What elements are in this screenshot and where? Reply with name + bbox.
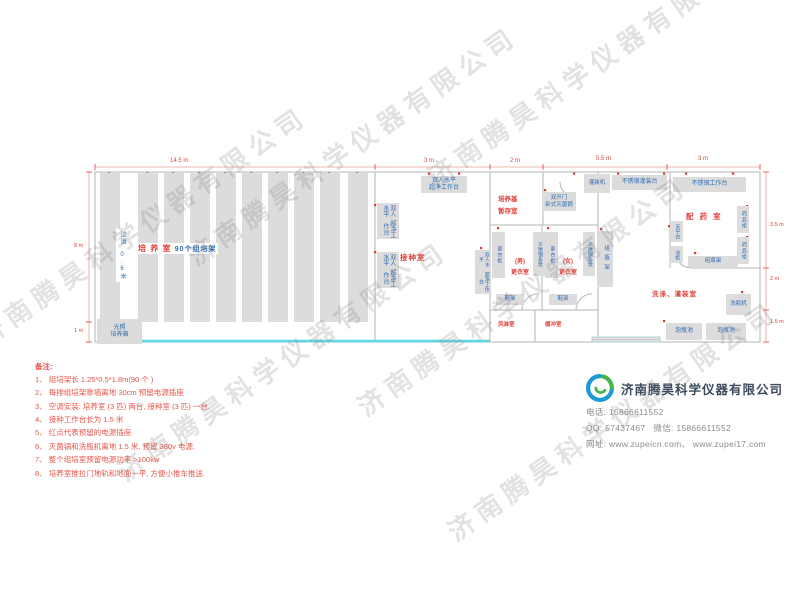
sterilizer: 双开门 卧式灭菌锅 xyxy=(542,192,576,211)
freezer: 冰柜 xyxy=(670,246,683,263)
clean-bench-top: 双人水平 超净工作台 xyxy=(421,176,467,193)
dispensing-room-label: 配 药 室 xyxy=(686,211,723,222)
culture-rack xyxy=(268,173,288,322)
dim-right-2: 2 m xyxy=(770,276,779,282)
male-changing-room-label: (男) 更衣室 xyxy=(506,257,534,279)
company-block: 济南腾昊科学仪器有限公司 电话: 15866611552 QQ: 5743746… xyxy=(586,374,783,450)
company-phone-line: 电话: 15866611552 xyxy=(586,406,783,418)
inoculation-room-label: 接种室 xyxy=(400,252,426,263)
culture-room-label: 培 养 室 90个组培架 xyxy=(136,243,218,254)
remark-item: 6、 灭菌锅和洗瓶机离地 1.5 米, 预留 380v 电源. xyxy=(35,442,210,453)
medicine-cabinet-1: 药品柜 xyxy=(737,206,749,233)
remark-item: 1、 组培架长 1.25*0.5*1.8m(90 个 ) xyxy=(35,375,210,386)
ss-worktable: 不锈钢工作台 xyxy=(673,177,746,192)
company-logo xyxy=(586,374,614,402)
dim-left-2: 1 m xyxy=(74,328,83,334)
ss-bench-female: 不锈钢条凳 xyxy=(583,232,595,276)
dim-top-1: 14.5 m xyxy=(170,158,188,164)
culture-rack xyxy=(294,173,314,322)
remarks-block: 备注: 1、 组培架长 1.25*0.5*1.8m(90 个 ) 2、 每排组培… xyxy=(35,362,210,482)
remark-item: 2、 每排组培架靠墙离地 30cm 预留电源插座 xyxy=(35,388,210,399)
company-web-line: 网址: www.zupeicn.com、 www.zupei17.com xyxy=(586,438,783,450)
culture-rack xyxy=(320,173,340,322)
bottle-rack-dispensing: 组瓶架 xyxy=(688,256,738,267)
floorplan-page: 培 养 室 90个组培架 过道 0.6米 光照 培养箱 接种室 双人水平 超净工… xyxy=(0,0,800,600)
ss-bench-male: 不锈钢条凳 xyxy=(533,232,545,276)
ss-filling-table: 不锈钢灌装台 xyxy=(612,175,667,190)
dim-top-4: 5.5 m xyxy=(596,156,611,162)
dim-top-3: 2 m xyxy=(510,158,520,164)
shoe-rack-female: 鞋架 xyxy=(549,294,577,305)
shoe-rack-male: 鞋架 xyxy=(496,294,524,305)
dim-right-3: 1.5 m xyxy=(770,319,784,325)
remark-item: 3、 空调安装: 培养室 (3 匹) 两台, 接种室 (3 匹) 一台. xyxy=(35,402,210,413)
plan-content: 培 养 室 90个组培架 过道 0.6米 光照 培养箱 接种室 双人水平 超净工… xyxy=(0,0,800,600)
clean-bench-left-2: 双人水平 超净工作台 xyxy=(377,252,399,288)
wechat-number: 15866611552 xyxy=(676,423,731,433)
bottle-washer: 洗瓶机 xyxy=(726,294,751,315)
air-shower-label: 风淋室 xyxy=(498,320,515,328)
dim-left-1: 8 m xyxy=(74,243,83,249)
clean-bench-right: 双人水平 超净工作台 xyxy=(475,250,491,294)
clean-bench-left-1: 双人水平 超净工作台 xyxy=(377,203,399,239)
dim-top-2: 3 m xyxy=(424,158,434,164)
company-name: 济南腾昊科学仪器有限公司 xyxy=(621,379,783,398)
bottle-rack-wall: 组瓶架 xyxy=(599,231,613,287)
dim-right-1: 3.5 m xyxy=(770,222,784,228)
company-qq-line: QQ: 57437467 微信: 15866611552 xyxy=(586,422,783,434)
remark-item: 7、 整个组培室预留电源功率 >100kw xyxy=(35,455,210,466)
remark-item: 5、 红点代表预留的电源插座 xyxy=(35,428,210,439)
culture-rack xyxy=(242,173,262,322)
remark-item: 4、 接种工作台长为 1.5 米 xyxy=(35,415,210,426)
wardrobe-male: 更衣柜 xyxy=(492,232,505,278)
light-incubator: 光照 培养箱 xyxy=(97,319,142,344)
culture-rack xyxy=(348,173,368,322)
female-changing-room-label: (女) 更衣室 xyxy=(554,257,582,279)
medicine-cabinet-2: 药品柜 xyxy=(737,237,749,264)
balance-table: 天平台 xyxy=(670,221,683,242)
culture-room-name: 培 养 室 xyxy=(138,244,171,253)
qq-number: 57437467 xyxy=(605,423,645,433)
phone-number: 15866611552 xyxy=(609,407,664,417)
dim-top-5: 3 m xyxy=(698,156,708,162)
websites: www.zupeicn.com、 www.zupei17.com xyxy=(609,439,766,449)
medium-storage-label: 培养基 暂存室 xyxy=(498,194,518,219)
washing-room-label: 洗涤、灌装室 xyxy=(652,288,697,298)
filling-machine: 灌装机 xyxy=(584,174,610,193)
buffer-room-label: 缓冲室 xyxy=(545,320,562,328)
remark-item: 8、 培养室推拉门地轨和地面一平, 方便小推车推送. xyxy=(35,469,210,480)
soak-pool-1: 泡瓶池 xyxy=(666,323,702,340)
rack-count-label: 90个组培架 xyxy=(175,246,217,253)
aisle-label: 过道 0.6米 xyxy=(116,228,129,282)
soak-pool-2: 泡瓶池 xyxy=(706,323,746,340)
culture-rack xyxy=(216,173,236,322)
remarks-title: 备注: xyxy=(35,362,210,373)
